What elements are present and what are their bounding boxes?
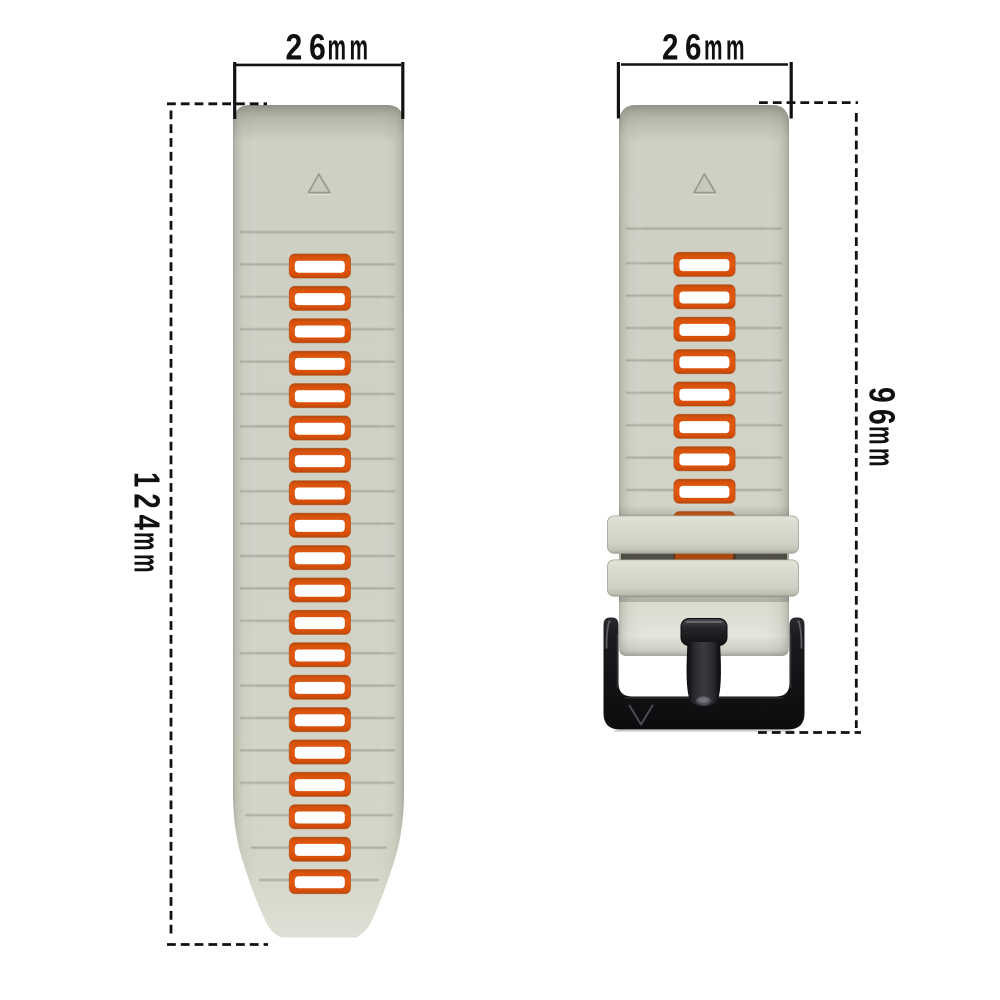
- svg-text:124: 124: [127, 472, 168, 536]
- svg-text:26: 26: [662, 27, 708, 68]
- svg-text:mm: mm: [127, 532, 168, 576]
- svg-text:mm: mm: [328, 27, 372, 68]
- svg-text:96: 96: [862, 387, 903, 431]
- svg-text:mm: mm: [862, 426, 903, 470]
- svg-text:mm: mm: [704, 27, 748, 68]
- svg-text:26: 26: [286, 27, 333, 68]
